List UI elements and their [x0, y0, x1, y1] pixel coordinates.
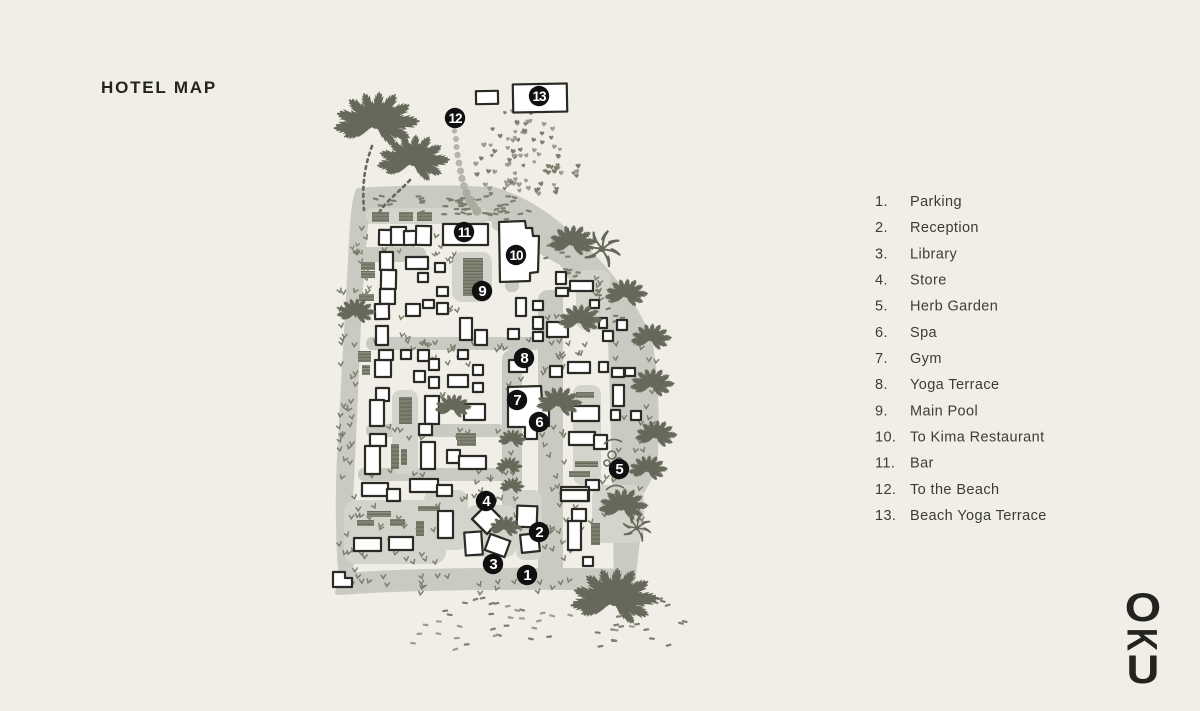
svg-text:5: 5	[615, 461, 623, 478]
svg-text:6.: 6.	[875, 325, 888, 341]
svg-text:12: 12	[448, 111, 463, 126]
svg-text:1: 1	[523, 567, 531, 584]
svg-text:2: 2	[535, 524, 543, 541]
svg-text:Yoga Terrace: Yoga Terrace	[910, 377, 999, 393]
svg-text:4.: 4.	[875, 273, 888, 289]
svg-text:8.: 8.	[875, 377, 888, 393]
svg-text:Main Pool: Main Pool	[910, 403, 978, 419]
svg-text:10: 10	[509, 248, 523, 263]
svg-text:13.: 13.	[875, 508, 896, 524]
svg-text:13: 13	[532, 89, 547, 104]
svg-text:Library: Library	[910, 246, 957, 262]
svg-text:9: 9	[478, 283, 486, 300]
svg-text:Reception: Reception	[910, 220, 979, 236]
svg-text:12.: 12.	[875, 482, 896, 498]
svg-text:3: 3	[489, 556, 497, 573]
svg-text:Gym: Gym	[910, 351, 942, 367]
svg-text:Spa: Spa	[910, 325, 938, 341]
svg-text:1.: 1.	[875, 194, 888, 210]
svg-text:To Kima Restaurant: To Kima Restaurant	[910, 430, 1045, 446]
svg-text:Parking: Parking	[910, 194, 962, 210]
svg-text:11: 11	[458, 225, 472, 240]
svg-text:To the Beach: To the Beach	[910, 482, 999, 498]
svg-text:7: 7	[513, 392, 521, 409]
svg-text:Bar: Bar	[910, 456, 934, 472]
svg-text:Store: Store	[910, 273, 947, 289]
svg-text:2.: 2.	[875, 220, 888, 236]
svg-text:11.: 11.	[875, 456, 895, 472]
svg-text:U: U	[1127, 647, 1160, 692]
svg-text:10.: 10.	[875, 430, 896, 446]
svg-text:9.: 9.	[875, 403, 888, 419]
svg-text:5.: 5.	[875, 299, 888, 315]
svg-text:8: 8	[520, 350, 528, 367]
svg-text:3.: 3.	[875, 246, 888, 262]
svg-text:Beach Yoga Terrace: Beach Yoga Terrace	[910, 508, 1047, 524]
svg-text:O: O	[1125, 585, 1161, 630]
svg-text:7.: 7.	[875, 351, 888, 367]
svg-text:Herb Garden: Herb Garden	[910, 299, 998, 315]
svg-text:6: 6	[535, 414, 543, 431]
svg-text:HOTEL MAP: HOTEL MAP	[101, 78, 217, 97]
